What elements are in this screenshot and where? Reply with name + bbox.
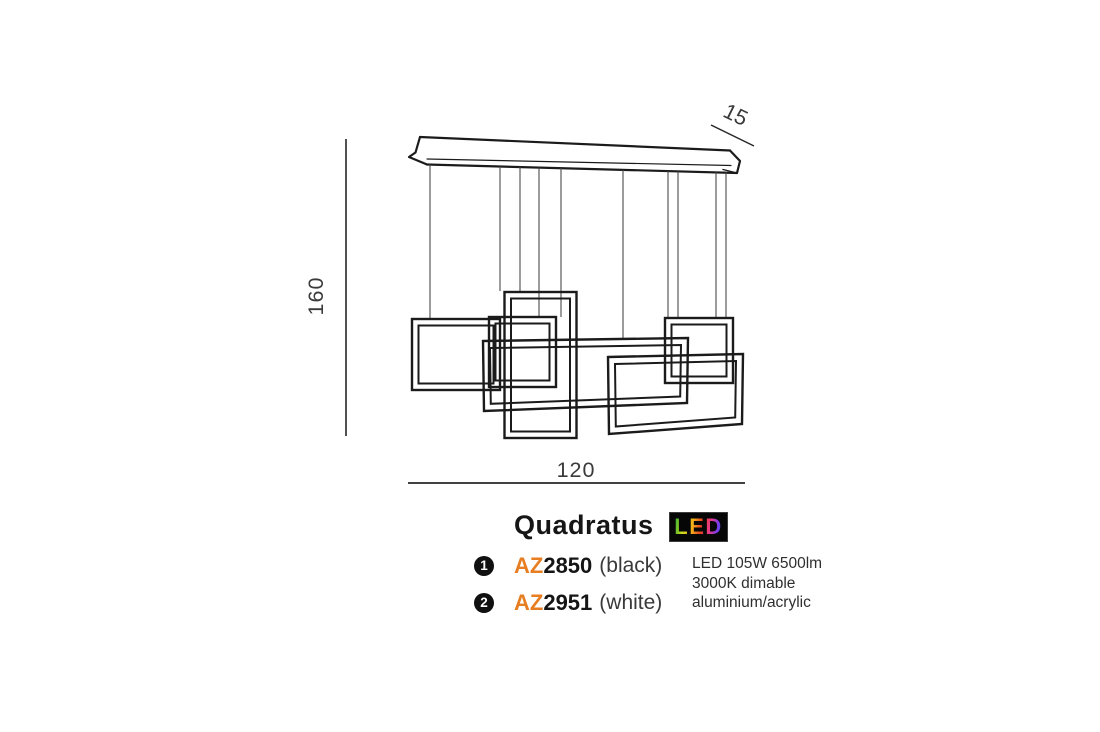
light-frames (412, 292, 743, 438)
variant-code-number: 2951 (543, 590, 592, 615)
spec-sheet: 160 120 15 Quadratus LED 1AZ2850(black) … (0, 0, 1100, 732)
variant-code: AZ2850 (514, 553, 592, 578)
depth-dimension-label: 15 (720, 99, 752, 131)
wide-middle-frame (483, 338, 688, 411)
dimension-annotations (346, 125, 754, 483)
variant-number-badge: 2 (474, 593, 494, 613)
canopy (409, 137, 740, 173)
left-frame (412, 319, 500, 390)
led-badge-label: LED (674, 516, 723, 538)
variant-code: AZ2951 (514, 590, 592, 615)
spec-list: LED 105W 6500lm 3000K dimable aluminium/… (692, 554, 822, 613)
variant-code-number: 2850 (543, 553, 592, 578)
lamp-diagram: 160 120 15 (0, 0, 1100, 732)
variant-code-prefix: AZ (514, 553, 543, 578)
variant-number-badge: 1 (474, 556, 494, 576)
height-dimension-label: 160 (304, 277, 328, 316)
variant-row-white: 2AZ2951(white) (474, 590, 662, 612)
product-name: Quadratus (514, 510, 654, 541)
width-dimension-label: 120 (557, 458, 596, 482)
depth-leader-line (711, 125, 754, 146)
led-badge: LED (669, 512, 728, 542)
variant-code-prefix: AZ (514, 590, 543, 615)
tall-center-frame (505, 292, 577, 438)
variant-finish: (black) (599, 554, 662, 577)
spec-color-temp: 3000K dimable (692, 574, 822, 594)
dimension-labels: 160 120 15 (304, 99, 752, 482)
variant-finish: (white) (599, 591, 662, 614)
suspension-wires (430, 165, 726, 340)
spec-power: LED 105W 6500lm (692, 554, 822, 574)
bottom-right-frame (608, 354, 743, 434)
spec-material: aluminium/acrylic (692, 593, 822, 613)
variant-row-black: 1AZ2850(black) (474, 553, 662, 575)
right-small-frame (665, 318, 733, 383)
